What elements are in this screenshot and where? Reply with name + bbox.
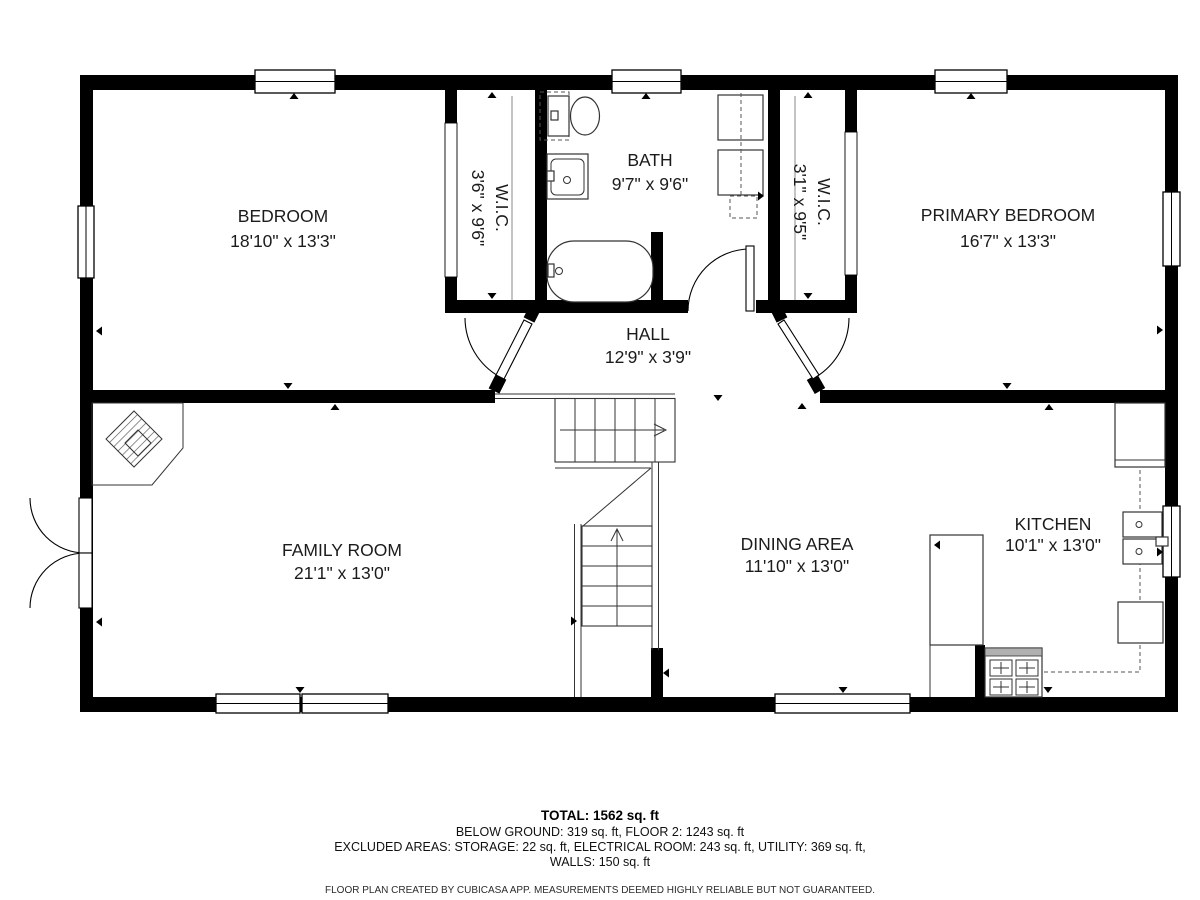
room-dims-wic-right: 3'1" x 9'5" [790,164,810,241]
room-label-hall: HALL [626,324,670,344]
window [78,206,94,278]
room-label-primary-bedroom: PRIMARY BEDROOM [921,205,1095,225]
staircase-icon [495,394,675,697]
room-label-dining-area: DINING AREA [741,534,854,554]
window [216,694,300,713]
bathtub-icon [547,241,653,302]
room-label-family-room: FAMILY ROOM [282,540,402,560]
kitchen-cabinets [1044,470,1163,672]
closet-opening [445,123,457,277]
window [302,694,388,713]
room-label-bedroom: BEDROOM [238,206,328,226]
room-dims-wic-left: 3'6" x 9'6" [468,170,488,247]
walls-area-text: WALLS: 150 sq. ft [550,855,651,869]
french-doors [30,498,92,608]
primary-bedroom-door [778,318,849,379]
room-dims-bath: 9'7" x 9'6" [612,174,689,194]
refrigerator-icon [1115,403,1165,467]
room-label-bath: BATH [627,150,672,170]
disclaimer-text: FLOOR PLAN CREATED BY CUBICASA APP. MEAS… [325,885,875,896]
room-dims-hall: 12'9" x 3'9" [605,347,691,367]
vanity-sink-icon [547,154,588,199]
bath-door [688,246,754,311]
closet-opening [845,132,857,275]
room-label-wic-left: W.I.C. [492,184,512,232]
fireplace-icon [92,403,183,485]
toilet-icon [540,92,600,140]
bedroom-door [465,318,532,379]
room-label-wic-right: W.I.C. [814,178,834,226]
total-area-text: TOTAL: 1562 sq. ft [541,808,660,823]
floor-plan-svg: BEDROOM 18'10" x 13'3" W.I.C. 3'6" x 9'6… [0,0,1200,900]
room-dims-kitchen: 10'1" x 13'0" [1005,535,1101,555]
laundry-cabinet-icon [718,93,763,218]
excluded-areas-text: EXCLUDED AREAS: STORAGE: 22 sq. ft, ELEC… [334,840,865,854]
window [1163,192,1180,266]
stove-icon [985,648,1042,697]
window [255,70,335,93]
room-dims-family-room: 21'1" x 13'0" [294,563,390,583]
room-label-kitchen: KITCHEN [1015,514,1092,534]
kitchen-sink-icon [1123,512,1168,564]
below-ground-text: BELOW GROUND: 319 sq. ft, FLOOR 2: 1243 … [456,825,745,839]
floor-plan-page: BEDROOM 18'10" x 13'3" W.I.C. 3'6" x 9'6… [0,0,1200,900]
window [935,70,1007,93]
room-dims-dining-area: 11'10" x 13'0" [745,556,849,576]
window [612,70,681,93]
room-dims-primary-bedroom: 16'7" x 13'3" [960,231,1056,251]
area-summary: TOTAL: 1562 sq. ft BELOW GROUND: 319 sq.… [325,808,875,896]
window [775,694,910,713]
room-dims-bedroom: 18'10" x 13'3" [230,231,336,251]
